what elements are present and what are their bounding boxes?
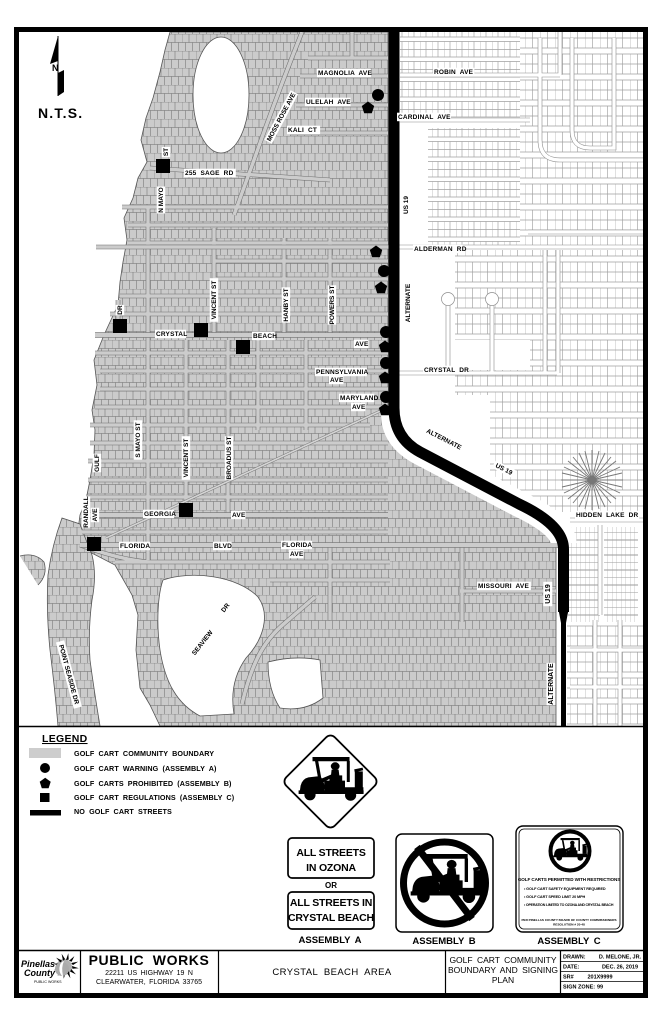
svg-text:GOLF CART COMMUNITY: GOLF CART COMMUNITY xyxy=(449,955,556,965)
svg-text:N: N xyxy=(52,63,59,73)
svg-text:ALTERNATE: ALTERNATE xyxy=(548,663,555,705)
svg-text:ROBIN AVE: ROBIN AVE xyxy=(434,69,474,76)
svg-text:PENNSYLVANIA: PENNSYLVANIA xyxy=(316,369,368,376)
svg-text:BEACH: BEACH xyxy=(253,333,277,340)
svg-text:D. MELONE, JR.: D. MELONE, JR. xyxy=(599,955,642,961)
svg-text:99: 99 xyxy=(597,985,603,991)
svg-text:US 19: US 19 xyxy=(403,196,410,214)
svg-text:N MAYO: N MAYO xyxy=(158,187,165,212)
svg-text:HIDDEN LAKE DR: HIDDEN LAKE DR xyxy=(576,512,639,519)
svg-text:County: County xyxy=(24,968,56,978)
svg-text:• GOLF CART SAFETY EQUIPMENT R: • GOLF CART SAFETY EQUIPMENT REQUIRED xyxy=(524,887,606,891)
svg-text:• OPERATION LIMITED TO OZONA A: • OPERATION LIMITED TO OZONA AND CRYSTAL… xyxy=(524,903,614,907)
svg-text:SR#: SR# xyxy=(563,975,574,981)
svg-text:SIGN ZONE:: SIGN ZONE: xyxy=(563,985,595,991)
svg-text:AVE: AVE xyxy=(330,377,344,384)
svg-text:US 19: US 19 xyxy=(545,584,552,604)
svg-text:22211 US HIGHWAY 19 N: 22211 US HIGHWAY 19 N xyxy=(105,970,193,977)
svg-text:GULF: GULF xyxy=(94,454,101,472)
svg-text:ST: ST xyxy=(163,148,170,156)
svg-text:VINCENT ST: VINCENT ST xyxy=(183,439,190,478)
svg-text:RANDALL: RANDALL xyxy=(83,496,90,527)
svg-text:LEGEND: LEGEND xyxy=(42,733,88,745)
svg-text:ULELAH AVE: ULELAH AVE xyxy=(306,99,351,106)
svg-text:AVE: AVE xyxy=(92,508,99,522)
svg-text:• GOLF CART SPEED LIMIT 20 MPH: • GOLF CART SPEED LIMIT 20 MPH xyxy=(524,895,586,899)
svg-text:POWERS ST: POWERS ST xyxy=(329,285,336,324)
svg-text:DR: DR xyxy=(117,305,124,315)
svg-text:FLORIDA: FLORIDA xyxy=(282,542,312,549)
svg-text:CRYSTAL BEACH AREA: CRYSTAL BEACH AREA xyxy=(272,967,391,978)
svg-text:NO GOLF CART STREETS: NO GOLF CART STREETS xyxy=(74,807,172,816)
svg-text:DEC. 26, 2019: DEC. 26, 2019 xyxy=(602,965,638,971)
svg-text:GOLF CART REGULATIONS (ASSEMBL: GOLF CART REGULATIONS (ASSEMBLY C) xyxy=(74,793,235,802)
svg-text:AVE: AVE xyxy=(232,512,246,519)
svg-text:ALTERNATE: ALTERNATE xyxy=(405,283,412,322)
svg-text:CARDINAL AVE: CARDINAL AVE xyxy=(398,114,451,121)
svg-text:MISSOURI AVE: MISSOURI AVE xyxy=(478,583,529,590)
svg-text:GEORGIA: GEORGIA xyxy=(144,511,176,518)
svg-text:KALI CT: KALI CT xyxy=(288,127,317,134)
svg-text:MARYLAND: MARYLAND xyxy=(340,395,379,402)
svg-text:AVE: AVE xyxy=(352,404,366,411)
svg-text:CRYSTAL: CRYSTAL xyxy=(156,331,187,338)
svg-text:PUBLIC WORKS: PUBLIC WORKS xyxy=(89,952,210,968)
svg-text:CRYSTAL DR: CRYSTAL DR xyxy=(424,367,469,374)
svg-text:HANBY ST: HANBY ST xyxy=(283,288,290,321)
svg-text:BLVD: BLVD xyxy=(214,543,232,550)
svg-text:S MAYO ST: S MAYO ST xyxy=(135,422,142,457)
svg-text:VINCENT ST: VINCENT ST xyxy=(211,281,218,320)
svg-text:255 SAGE RD: 255 SAGE RD xyxy=(185,170,234,177)
svg-text:201X9999: 201X9999 xyxy=(587,975,612,981)
svg-text:PLAN: PLAN xyxy=(492,975,514,985)
svg-text:N.T.S.: N.T.S. xyxy=(38,105,83,121)
svg-text:ASSEMBLY A: ASSEMBLY A xyxy=(299,935,362,946)
svg-text:ALL STREETS IN: ALL STREETS IN xyxy=(290,897,372,909)
svg-text:PUBLIC WORKS: PUBLIC WORKS xyxy=(34,980,62,984)
svg-text:GOLF CART WARNING (ASSEMBLY A): GOLF CART WARNING (ASSEMBLY A) xyxy=(74,764,217,773)
svg-text:AVE: AVE xyxy=(355,341,369,348)
svg-text:IN OZONA: IN OZONA xyxy=(306,862,356,874)
svg-text:GOLF CARTS PERMITTED WITH REST: GOLF CARTS PERMITTED WITH RESTRICTIONS xyxy=(518,877,620,882)
svg-text:GOLF CART COMMUNITY BOUNDARY: GOLF CART COMMUNITY BOUNDARY xyxy=(74,749,214,758)
svg-text:PER PINELLAS COUNTY BOARD OF C: PER PINELLAS COUNTY BOARD OF COUNTY COMM… xyxy=(521,918,616,922)
svg-text:BROADUS ST: BROADUS ST xyxy=(226,436,233,479)
svg-text:ASSEMBLY C: ASSEMBLY C xyxy=(537,936,600,947)
svg-text:ALDERMAN RD: ALDERMAN RD xyxy=(414,246,467,253)
svg-text:GOLF CARTS PROHIBITED (ASSEMBL: GOLF CARTS PROHIBITED (ASSEMBLY B) xyxy=(74,779,232,788)
svg-text:DATE:: DATE: xyxy=(563,965,580,971)
svg-text:CLEARWATER, FLORIDA 33765: CLEARWATER, FLORIDA 33765 xyxy=(96,979,202,986)
svg-text:FLORIDA: FLORIDA xyxy=(120,543,150,550)
svg-text:ALL STREETS: ALL STREETS xyxy=(296,847,366,859)
svg-text:DRAWN:: DRAWN: xyxy=(563,955,586,961)
svg-text:CRYSTAL BEACH: CRYSTAL BEACH xyxy=(288,912,374,924)
svg-text:ASSEMBLY B: ASSEMBLY B xyxy=(412,936,475,947)
svg-text:BOUNDARY AND SIGNING: BOUNDARY AND SIGNING xyxy=(448,965,558,975)
svg-text:RESOLUTION # 20-48: RESOLUTION # 20-48 xyxy=(553,923,585,927)
svg-text:AVE: AVE xyxy=(290,551,304,558)
svg-text:MAGNOLIA AVE: MAGNOLIA AVE xyxy=(318,70,372,77)
svg-text:OR: OR xyxy=(325,881,337,890)
